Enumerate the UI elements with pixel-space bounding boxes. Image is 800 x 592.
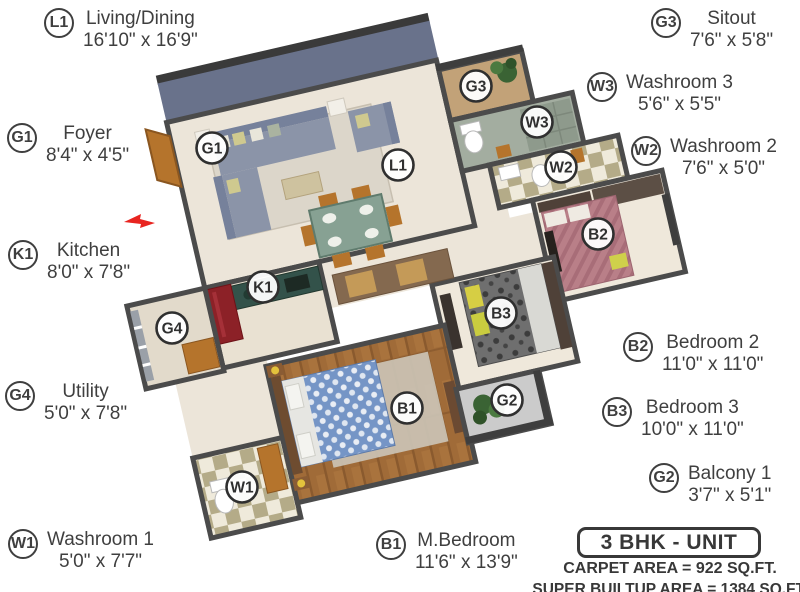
room-dims: 16'10" x 16'9" [83,30,198,52]
utility-cabinet [182,337,220,373]
room-dims: 8'0" x 7'8" [47,262,130,284]
room-name: Washroom 1 [47,529,154,551]
room-code-badge: G2 [649,463,679,493]
svg-text:L1: L1 [389,158,407,175]
carpet-area-line: CARPET AREA = 922 SQ.FT. [545,560,795,578]
plan-label-g1: G1 [197,133,228,164]
room-name: M.Bedroom [417,530,515,552]
room-code-badge: L1 [44,8,74,38]
room-name: Utility [62,381,108,403]
room-dims: 7'6" x 5'0" [682,158,765,180]
room-dims: 3'7" x 5'1" [688,485,771,507]
room-annotation-kitchen: K1 Kitchen 8'0" x 7'8" [8,240,130,284]
plan-label-k1: K1 [248,272,279,303]
room-dims: 5'6" x 5'5" [638,94,721,116]
room-annotation-sitout: G3 Sitout 7'6" x 5'8" [651,8,773,52]
entry-arrow-icon [124,214,155,228]
room-annotation-washroom1: W1 Washroom 1 5'0" x 7'7" [8,529,154,573]
room-annotation-bedroom2: B2 Bedroom 2 11'0" x 11'0" [623,332,763,376]
room-annotation-bedroom3: B3 Bedroom 3 10'0" x 11'0" [602,397,744,441]
room-name: Bedroom 3 [646,397,739,419]
plan-label-g4: G4 [157,313,188,344]
room-name: Washroom 3 [626,72,733,94]
plan-label-w2: W2 [546,152,577,183]
end-table [327,98,347,116]
room-code-badge: W3 [587,72,617,102]
room-annotation-washroom3: W3 Washroom 3 5'6" x 5'5" [587,72,733,116]
room-code-badge: B1 [376,530,406,560]
room-code-badge: B3 [602,397,632,427]
room-dims: 5'0" x 7'7" [59,551,142,573]
room-code-badge: K1 [8,240,38,270]
plan-label-w1: W1 [227,472,258,503]
room-name: Living/Dining [86,8,195,30]
plan-label-g3: G3 [461,71,492,102]
unit-type-box: 3 BHK - UNIT [577,527,761,558]
svg-text:G2: G2 [497,393,518,410]
plan-label-b3: B3 [486,298,517,329]
plan-label-b2: B2 [583,219,614,250]
svg-text:K1: K1 [253,280,273,297]
room-name: Bedroom 2 [666,332,759,354]
floorplan-page: { "title_box": { "label": "3 BHK - UNIT"… [0,0,800,592]
room-name: Washroom 2 [670,136,777,158]
room-annotation-utility: G4 Utility 5'0" x 7'8" [5,381,127,425]
room-annotation-washroom2: W2 Washroom 2 7'6" x 5'0" [631,136,777,180]
room-dims: 10'0" x 11'0" [641,419,744,441]
plan-label-b1: B1 [392,393,423,424]
room-dims: 11'6" x 13'9" [415,552,518,574]
room-name: Sitout [707,8,756,30]
plan-label-g2: G2 [492,385,523,416]
svg-text:W1: W1 [230,480,254,497]
room-name: Foyer [63,123,112,145]
room-code-badge: G1 [7,123,37,153]
svg-text:W2: W2 [549,160,572,177]
svg-text:G4: G4 [162,321,183,338]
svg-text:G3: G3 [466,79,487,96]
plan-label-l1: L1 [383,150,414,181]
svg-text:G1: G1 [202,141,223,158]
svg-text:B2: B2 [588,227,608,244]
svg-text:B1: B1 [397,401,417,418]
room-name: Kitchen [57,240,120,262]
room-dims: 8'4" x 4'5" [46,145,129,167]
svg-text:B3: B3 [491,306,511,323]
room-annotation-living-dining: L1 Living/Dining 16'10" x 16'9" [44,8,198,52]
room-annotation-master-bedroom: B1 M.Bedroom 11'6" x 13'9" [376,530,518,574]
floorplan-stage: G1 L1 G3 W3 W2 B2 [0,0,800,592]
room-code-badge: G4 [5,381,35,411]
room-code-badge: W2 [631,136,661,166]
room-code-badge: W1 [8,529,38,559]
room-dims: 5'0" x 7'8" [44,403,127,425]
room-code-badge: G3 [651,8,681,38]
svg-text:W3: W3 [525,115,549,132]
plan-label-w3: W3 [522,107,553,138]
room-code-badge: B2 [623,332,653,362]
room-annotation-balcony1: G2 Balcony 1 3'7" x 5'1" [649,463,771,507]
room-annotation-foyer: G1 Foyer 8'4" x 4'5" [7,123,129,167]
room-dims: 11'0" x 11'0" [662,354,763,376]
room-dims: 7'6" x 5'8" [690,30,773,52]
super-builtup-area-line: SUPER BUILTUP AREA = 1384 SQ.FT. [527,581,800,592]
room-name: Balcony 1 [688,463,771,485]
